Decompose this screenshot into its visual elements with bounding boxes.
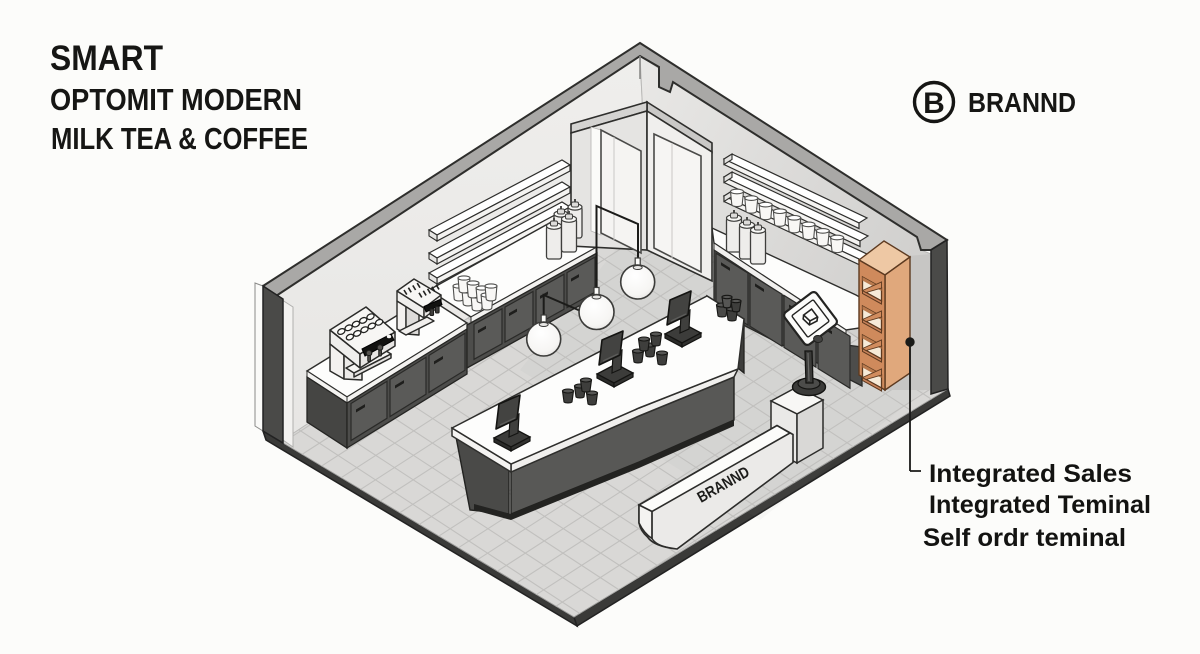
svg-text:Integrated Teminal: Integrated Teminal xyxy=(929,491,1151,519)
svg-text:BRANND: BRANND xyxy=(968,87,1076,118)
svg-text:Integrated Sales: Integrated Sales xyxy=(929,460,1132,488)
svg-text:SMART: SMART xyxy=(50,39,163,78)
svg-text:OPTOMIT MODERN: OPTOMIT MODERN xyxy=(50,82,302,117)
svg-text:MILK TEA & COFFEE: MILK TEA & COFFEE xyxy=(51,121,308,156)
svg-text:Self ordr teminal: Self ordr teminal xyxy=(923,524,1126,552)
svg-text:B: B xyxy=(923,87,945,120)
